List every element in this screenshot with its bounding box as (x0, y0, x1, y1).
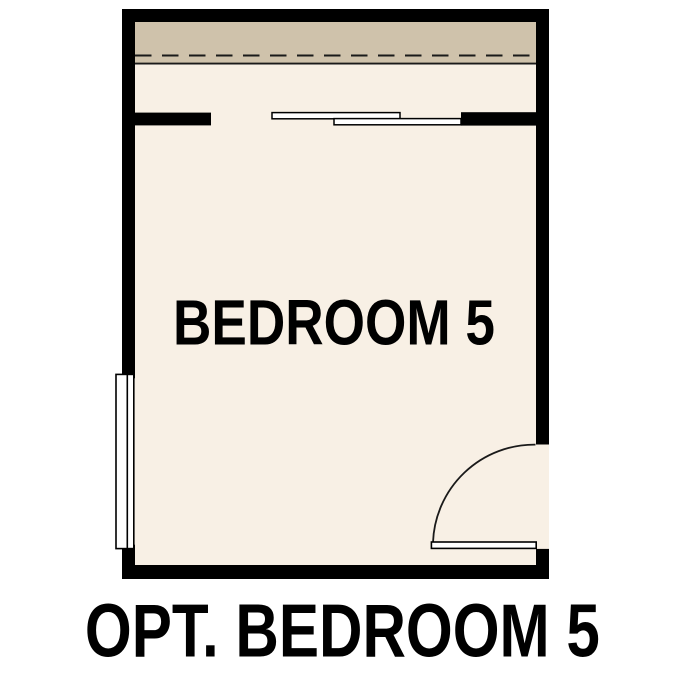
svg-text:OPT. BEDROOM 5: OPT. BEDROOM 5 (85, 589, 600, 673)
svg-text:BEDROOM 5: BEDROOM 5 (173, 287, 495, 359)
